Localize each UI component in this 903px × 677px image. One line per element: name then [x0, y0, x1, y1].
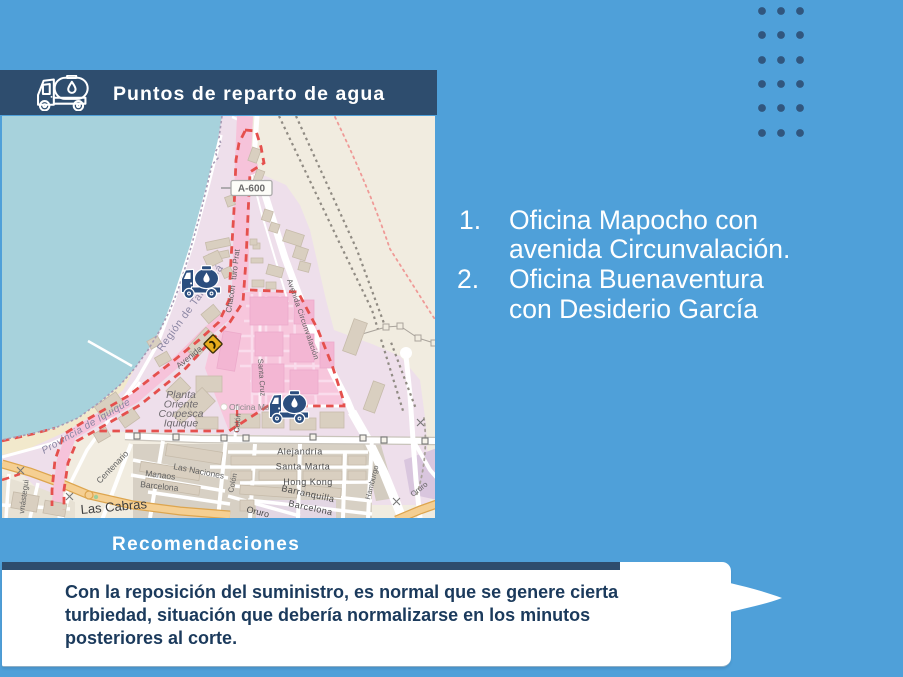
svg-text:Santa Marta: Santa Marta — [276, 462, 331, 472]
svg-text:Colón: Colón — [232, 413, 243, 433]
svg-text:Alejandría: Alejandría — [277, 447, 323, 457]
svg-text:A-600: A-600 — [238, 184, 266, 195]
svg-text:Iquique: Iquique — [164, 418, 199, 430]
svg-text:Oficina Map: Oficina Map — [229, 402, 275, 412]
